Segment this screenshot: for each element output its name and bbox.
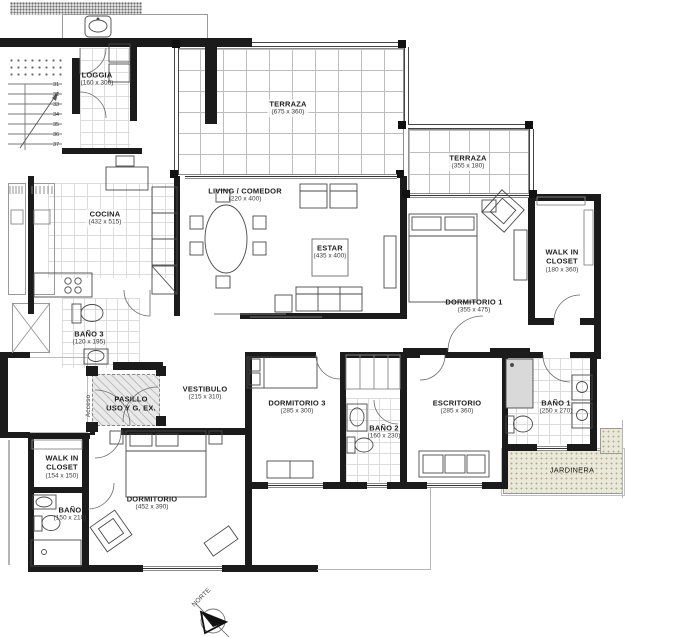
dresser-icon xyxy=(514,230,527,280)
stair-number: 37 xyxy=(53,142,59,148)
floor-plan: LOGGIA(160 x 300) TERRAZA(675 x 360) TER… xyxy=(0,0,680,637)
room-label-dormitorio3: DORMITORIO 3(285 x 300) xyxy=(268,398,325,416)
room-label-walkincloset2: WALK INCLOSET(154 x 150) xyxy=(45,454,78,481)
room-label-dormitorio1: DORMITORIO 1(355 x 475) xyxy=(445,297,502,315)
stair-number: 32 xyxy=(53,92,59,98)
room-label-terraza1: TERRAZA(675 x 360) xyxy=(267,99,308,117)
elevator-icon xyxy=(10,186,52,353)
room-label-jardinera: JARDINERA xyxy=(550,465,594,474)
room-label-walkincloset1: WALK INCLOSET(180 x 360) xyxy=(545,248,578,275)
room-label-living-comedor: LIVING / COMEDOR(220 x 400) xyxy=(208,186,282,204)
room-label-loggia: LOGGIA(160 x 300) xyxy=(81,70,114,88)
room-label-terraza2: TERRAZA(355 x 180) xyxy=(447,153,488,171)
stair-number: 34 xyxy=(53,112,59,118)
armchair-icon xyxy=(482,190,524,232)
side-table-icon xyxy=(204,526,238,556)
room-label-escritorio: ESCRITORIO(285 x 360) xyxy=(433,398,482,416)
kitchen-table-icon xyxy=(106,156,148,190)
room-label-pasillo: PASILLOUSO Y G. EX. xyxy=(106,395,156,414)
room-label-dormitorio2: DORMITORIO(452 x 390) xyxy=(127,494,178,512)
dining-table-icon xyxy=(190,190,266,288)
fixtures-overlay xyxy=(0,0,680,637)
stair-number: 33 xyxy=(53,102,59,108)
stair-number: 35 xyxy=(53,122,59,128)
room-label-cocina: COCINA(432 x 515) xyxy=(87,209,124,227)
door-swing-arcs xyxy=(80,48,580,509)
stair-number: 31 xyxy=(53,82,59,88)
kitchen-counter-icon xyxy=(34,187,177,297)
bed-icon xyxy=(409,200,496,302)
bed-icon xyxy=(110,431,222,497)
armchair-icon xyxy=(90,510,132,552)
laundry-sink-icon xyxy=(85,16,111,37)
room-label-bano1: BAÑO 1(250 x 270) xyxy=(540,398,573,416)
north-compass-icon xyxy=(196,604,231,637)
daybed-icon xyxy=(419,451,489,477)
room-label-bano2: BAÑO 2(160 x 230) xyxy=(368,423,401,441)
room-label-vestibulo: VESTIBULO(215 x 310) xyxy=(183,384,228,402)
cabinet-icon xyxy=(384,236,396,288)
stair-number: 36 xyxy=(53,132,59,138)
room-label-banoppl: BAÑO(150 x 210) xyxy=(54,505,87,523)
shower-icon xyxy=(506,359,533,408)
bed-icon xyxy=(247,357,317,478)
acceso-annotation: Acceso xyxy=(85,395,93,418)
room-label-bano3: BAÑO 3(120 x 195) xyxy=(73,329,106,347)
sliding-door xyxy=(214,314,322,317)
room-label-estar: ESTAR(435 x 400) xyxy=(314,243,347,261)
